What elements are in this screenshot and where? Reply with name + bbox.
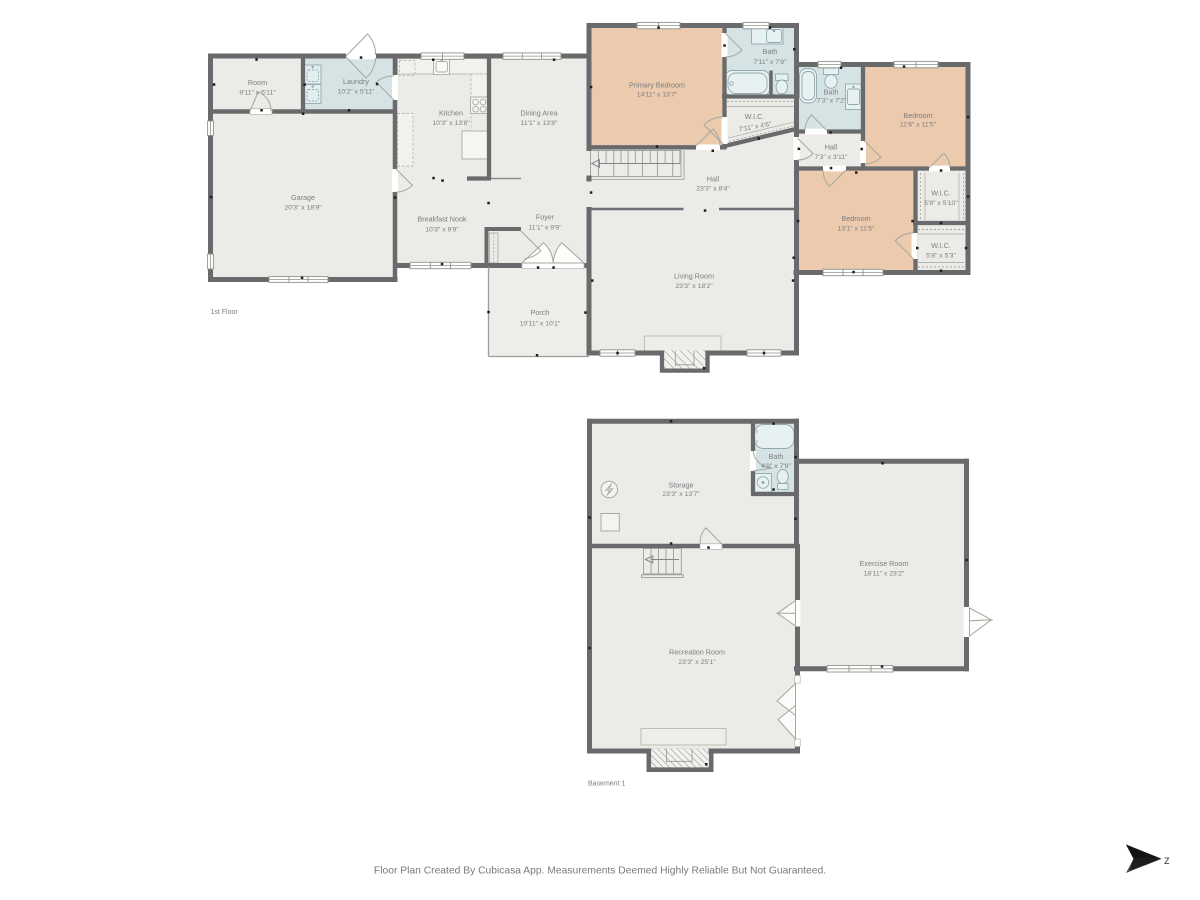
- svg-text:Bedroom: Bedroom: [903, 111, 932, 120]
- svg-text:10'3" x 13'8": 10'3" x 13'8": [432, 120, 470, 127]
- svg-text:Hall: Hall: [825, 142, 838, 151]
- svg-text:Breakfast Nook: Breakfast Nook: [417, 215, 467, 224]
- svg-text:Recreation Room: Recreation Room: [669, 648, 725, 657]
- svg-text:11'1" x 9'9": 11'1" x 9'9": [529, 224, 563, 231]
- svg-text:4'9" x 7'9": 4'9" x 7'9": [761, 463, 791, 470]
- svg-text:Basement 1: Basement 1: [588, 781, 625, 788]
- svg-text:Garage: Garage: [291, 193, 315, 202]
- svg-text:Bath: Bath: [763, 47, 778, 56]
- svg-text:7'11" x 7'9": 7'11" x 7'9": [754, 59, 788, 66]
- svg-text:10'3" x 9'9": 10'3" x 9'9": [425, 227, 459, 234]
- svg-text:Hall: Hall: [707, 174, 720, 183]
- svg-text:9'11" x 5'11": 9'11" x 5'11": [239, 89, 276, 96]
- svg-text:11'1" x 13'8": 11'1" x 13'8": [521, 120, 558, 127]
- svg-text:Laundry: Laundry: [343, 77, 369, 86]
- svg-text:13'1" x 11'5": 13'1" x 11'5": [838, 225, 875, 232]
- svg-text:11'6" x 11'5": 11'6" x 11'5": [900, 121, 937, 128]
- svg-text:Floor Plan Created By Cubicasa: Floor Plan Created By Cubicasa App. Meas…: [374, 866, 826, 877]
- svg-text:5'8" x 5'3": 5'8" x 5'3": [926, 252, 956, 259]
- svg-text:Dining Area: Dining Area: [520, 109, 557, 118]
- svg-text:10'2" x 5'11": 10'2" x 5'11": [338, 88, 375, 95]
- svg-text:Porch: Porch: [531, 308, 550, 317]
- svg-text:Room: Room: [248, 78, 267, 87]
- svg-text:18'11" x 23'2": 18'11" x 23'2": [864, 570, 905, 577]
- svg-text:23'3" x 8'4": 23'3" x 8'4": [696, 186, 730, 193]
- svg-text:23'3" x 18'2": 23'3" x 18'2": [675, 283, 713, 290]
- svg-text:z: z: [1164, 855, 1170, 867]
- svg-text:Bath: Bath: [769, 452, 784, 461]
- svg-text:14'11" x 13'7": 14'11" x 13'7": [637, 92, 678, 99]
- svg-text:Exercise Room: Exercise Room: [860, 559, 909, 568]
- svg-text:5'8" x 5'10": 5'8" x 5'10": [924, 200, 958, 207]
- svg-text:Primary Bedroom: Primary Bedroom: [629, 81, 685, 90]
- svg-text:Bath: Bath: [824, 87, 839, 96]
- svg-text:W.I.C.: W.I.C.: [931, 241, 951, 250]
- svg-text:23'3" x 25'1": 23'3" x 25'1": [678, 659, 716, 666]
- svg-text:7'3" x 7'2": 7'3" x 7'2": [817, 97, 847, 104]
- svg-text:Storage: Storage: [668, 481, 693, 490]
- svg-text:W.I.C.: W.I.C.: [931, 189, 951, 198]
- svg-text:23'3" x 13'7": 23'3" x 13'7": [662, 491, 700, 498]
- svg-text:1st Floor: 1st Floor: [211, 309, 239, 316]
- svg-text:W.I.C.: W.I.C.: [745, 112, 765, 121]
- svg-text:20'3" x 18'9": 20'3" x 18'9": [284, 204, 322, 211]
- svg-text:Bedroom: Bedroom: [841, 214, 870, 223]
- svg-text:Living Room: Living Room: [674, 272, 714, 281]
- svg-text:10'11" x 10'1": 10'11" x 10'1": [520, 321, 561, 328]
- svg-text:Kitchen: Kitchen: [439, 109, 463, 118]
- svg-text:7'3" x 3'11": 7'3" x 3'11": [815, 154, 849, 161]
- svg-text:Foyer: Foyer: [536, 212, 555, 221]
